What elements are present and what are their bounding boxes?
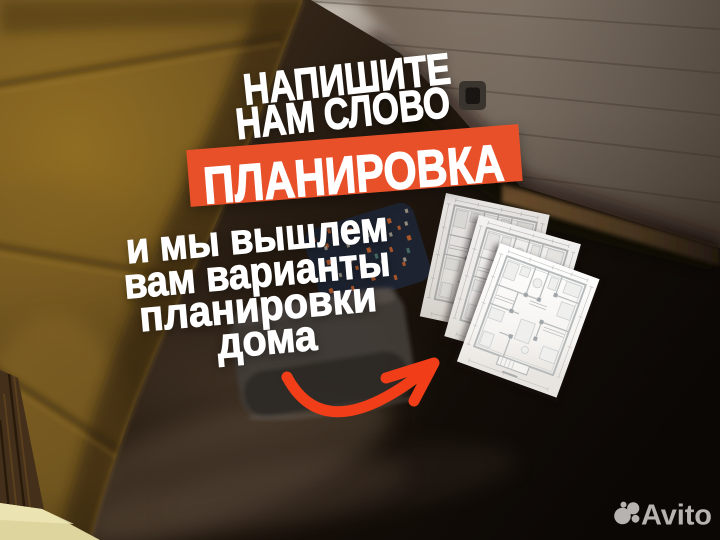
svg-text:Avito: Avito — [641, 500, 712, 532]
